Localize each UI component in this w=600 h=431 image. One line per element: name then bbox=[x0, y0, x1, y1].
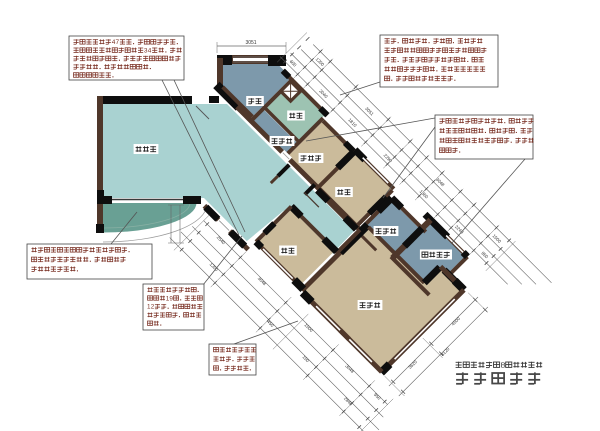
svg-text:4: 4 bbox=[148, 47, 152, 54]
svg-text:9: 9 bbox=[169, 295, 173, 302]
svg-text:7: 7 bbox=[116, 39, 120, 46]
svg-text:2: 2 bbox=[151, 304, 155, 311]
svg-text:B: B bbox=[501, 360, 506, 369]
svg-text:3051: 3051 bbox=[245, 40, 256, 46]
